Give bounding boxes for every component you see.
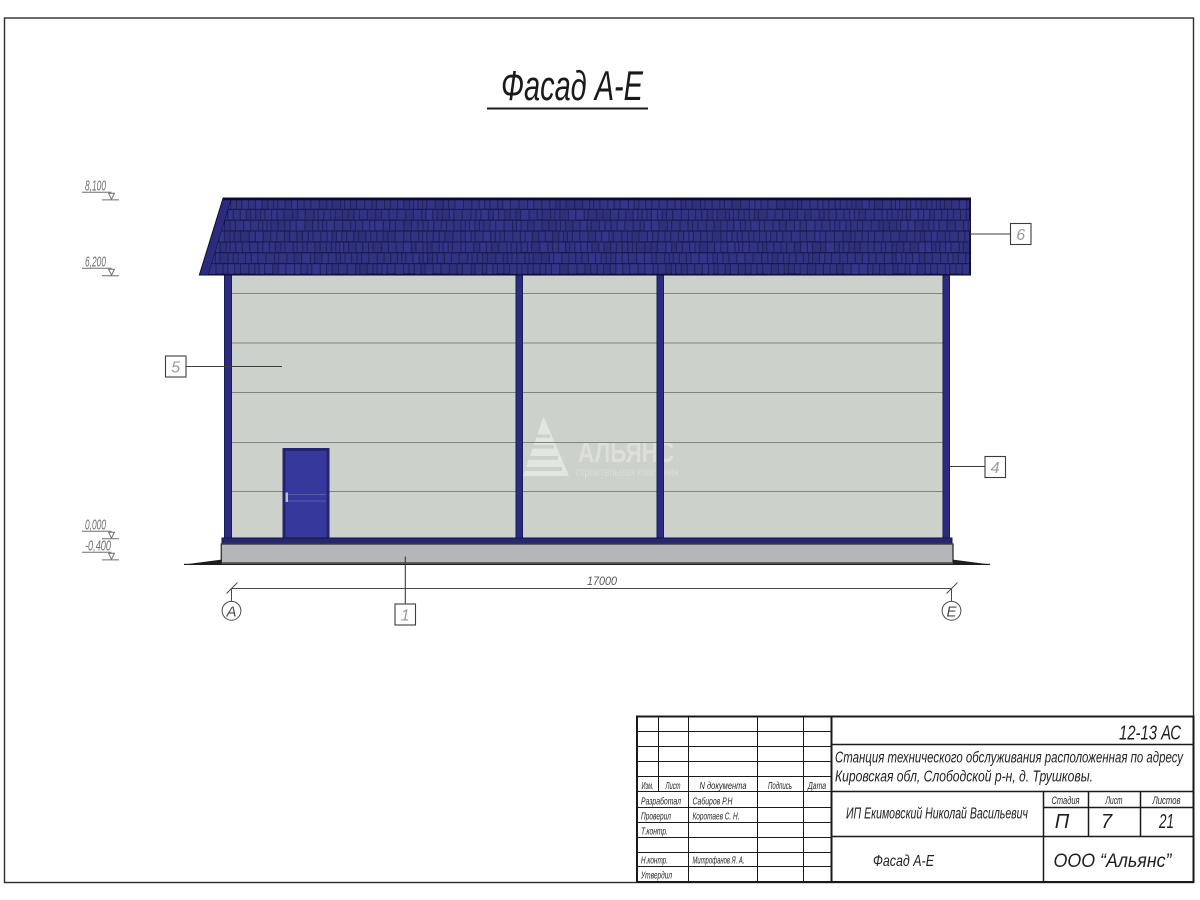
- svg-text:П: П: [1055, 811, 1070, 833]
- svg-text:Н.контр.: Н.контр.: [641, 855, 668, 867]
- svg-text:ООО “Альянс”: ООО “Альянс”: [1054, 851, 1174, 872]
- svg-text:Т.контр.: Т.контр.: [641, 826, 668, 838]
- svg-text:Подпись: Подпись: [768, 780, 792, 792]
- svg-text:Лист: Лист: [1105, 795, 1123, 807]
- svg-text:5: 5: [171, 360, 180, 377]
- svg-text:12-13 АС: 12-13 АС: [1119, 723, 1181, 745]
- svg-text:Фасад А-Е: Фасад А-Е: [873, 853, 934, 870]
- svg-text:Сабиров Р.Н: Сабиров Р.Н: [693, 796, 733, 808]
- svg-text:17000: 17000: [587, 574, 617, 588]
- svg-text:4: 4: [991, 460, 1000, 477]
- svg-text:6: 6: [1016, 227, 1025, 244]
- svg-text:6,200: 6,200: [85, 254, 106, 271]
- svg-text:А: А: [225, 603, 236, 620]
- svg-text:Листов: Листов: [1152, 795, 1181, 807]
- svg-text:Кировская обл, Слободской р-н,: Кировская обл, Слободской р-н, д. Трушко…: [835, 769, 1093, 786]
- svg-text:-0,400: -0,400: [85, 538, 111, 555]
- svg-text:Станция технического обслужива: Станция технического обслуживания распол…: [835, 750, 1184, 767]
- svg-text:7: 7: [1101, 811, 1113, 833]
- svg-text:Е: Е: [946, 603, 957, 620]
- svg-text:21: 21: [1158, 811, 1174, 833]
- svg-text:Коротаев С. Н.: Коротаев С. Н.: [693, 811, 740, 823]
- svg-text:ИП Екимовский Николай Васильев: ИП Екимовский Николай Васильевич: [846, 806, 1028, 823]
- svg-text:Митрофанов Я. А.: Митрофанов Я. А.: [693, 855, 745, 867]
- svg-text:Проверил: Проверил: [641, 811, 671, 823]
- svg-text:Разработал: Разработал: [641, 796, 681, 808]
- svg-text:N документа: N документа: [700, 780, 747, 792]
- svg-text:Стадия: Стадия: [1052, 795, 1080, 807]
- svg-text:0,000: 0,000: [85, 517, 106, 534]
- svg-text:Изм.: Изм.: [642, 780, 654, 792]
- svg-text:Дата: Дата: [807, 780, 826, 792]
- svg-text:Лист: Лист: [665, 780, 681, 792]
- svg-text:Фасад А-Е: Фасад А-Е: [501, 62, 644, 109]
- svg-text:8,100: 8,100: [85, 178, 106, 195]
- svg-text:Утвердил: Утвердил: [640, 870, 672, 882]
- svg-text:1: 1: [401, 608, 410, 625]
